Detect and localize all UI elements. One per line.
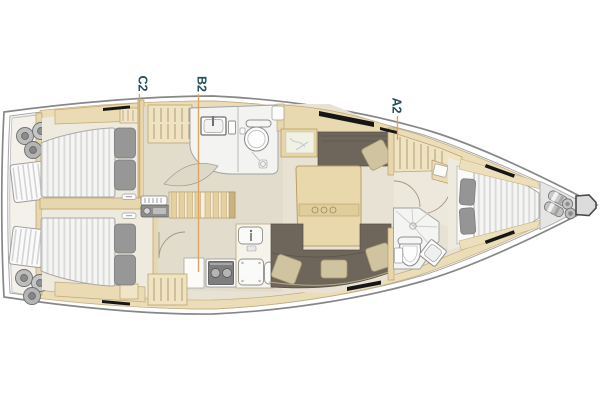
svg-text:A2: A2 (390, 98, 404, 114)
svg-text:C2: C2 (136, 76, 150, 92)
svg-text:B2: B2 (195, 76, 209, 92)
